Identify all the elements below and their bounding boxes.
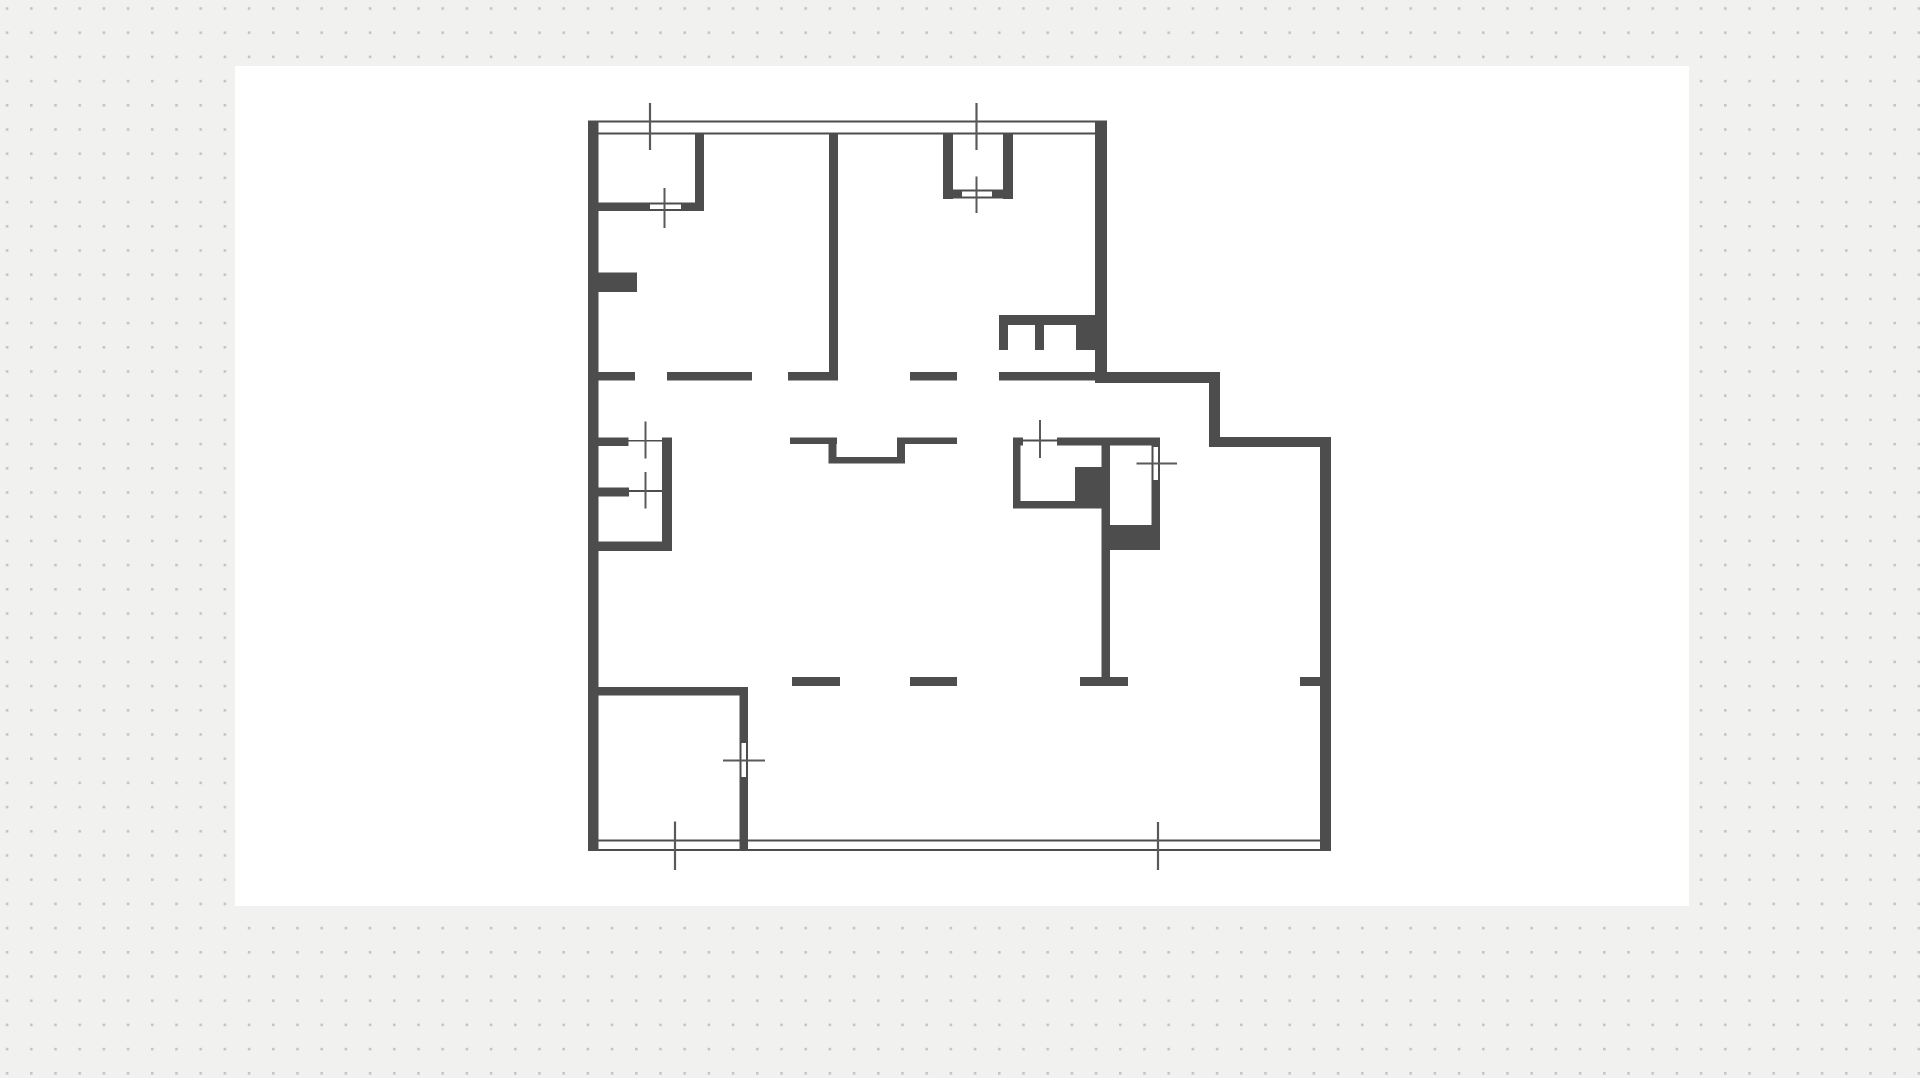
dimension-tick-top-wall-tick-right bbox=[975, 103, 977, 150]
wall-room3-top[interactable] bbox=[588, 687, 748, 696]
wall-room3-right-a[interactable] bbox=[740, 687, 749, 743]
wall-bath-right-b[interactable] bbox=[1152, 480, 1161, 550]
wall-counter-block[interactable] bbox=[1076, 325, 1097, 350]
wall-partition-lower[interactable] bbox=[1102, 550, 1111, 677]
thin-top-wall-outer[interactable] bbox=[588, 121, 1095, 123]
wall-dash1-c[interactable] bbox=[788, 372, 838, 381]
wall-closet-right[interactable] bbox=[662, 438, 672, 552]
wall-dash2-a[interactable] bbox=[792, 677, 840, 686]
wall-bath-bottom-left[interactable] bbox=[1013, 501, 1077, 509]
wall-closet-bottom[interactable] bbox=[598, 542, 672, 552]
design-canvas[interactable] bbox=[0, 0, 1920, 1078]
wall-dash1-a[interactable] bbox=[598, 372, 635, 381]
wall-exterior-right-lower[interactable] bbox=[1320, 437, 1331, 850]
wall-dash1-d[interactable] bbox=[910, 372, 957, 381]
wall-room2-right[interactable] bbox=[1003, 133, 1013, 199]
wall-counter-stub-b[interactable] bbox=[1035, 325, 1044, 350]
opening-tick bbox=[1137, 462, 1178, 464]
wall-bath-left[interactable] bbox=[1013, 438, 1021, 509]
wall-closet-mid[interactable] bbox=[598, 488, 629, 497]
opening-tick bbox=[975, 177, 977, 214]
floorplan-svg[interactable] bbox=[0, 0, 1920, 1078]
opening-tick bbox=[644, 472, 646, 509]
dimension-tick-top-wall-tick-left bbox=[649, 103, 651, 150]
wall-bath-right-a[interactable] bbox=[1152, 438, 1161, 448]
wall-pier[interactable] bbox=[598, 273, 637, 293]
wall-room1-right[interactable] bbox=[695, 133, 704, 211]
wall-step-top[interactable] bbox=[1107, 372, 1220, 383]
wall-niche-top-right[interactable] bbox=[897, 438, 957, 445]
opening-tick bbox=[1039, 420, 1041, 458]
wall-exterior-left[interactable] bbox=[588, 121, 599, 852]
wall-dash1-b[interactable] bbox=[667, 372, 752, 381]
thin-bottom-wall-outer[interactable] bbox=[588, 849, 1331, 851]
wall-closet-top-a[interactable] bbox=[598, 438, 629, 447]
opening-tick bbox=[723, 759, 765, 761]
thin-bottom-wall-inner[interactable] bbox=[599, 840, 1321, 842]
opening-tick bbox=[663, 188, 665, 228]
wall-dash2-stub[interactable] bbox=[1300, 677, 1320, 686]
wall-counter-stub-a[interactable] bbox=[999, 325, 1008, 350]
wall-room2-bottom-a[interactable] bbox=[943, 190, 962, 199]
wall-counter-top[interactable] bbox=[999, 315, 1097, 325]
wall-room2-left[interactable] bbox=[943, 133, 953, 199]
wall-dash1-e[interactable] bbox=[999, 372, 1095, 381]
wall-niche-bottom[interactable] bbox=[829, 457, 906, 464]
wall-bath-top-b[interactable] bbox=[1057, 438, 1160, 446]
opening-tick bbox=[644, 422, 646, 459]
wall-tbar[interactable] bbox=[1080, 677, 1128, 686]
wall-step-side[interactable] bbox=[1209, 383, 1220, 447]
wall-bath-mid[interactable] bbox=[1102, 445, 1111, 525]
dimension-tick-bottom-wall-tick-left bbox=[674, 822, 676, 871]
wall-interior-main[interactable] bbox=[829, 133, 838, 380]
wall-step-top-2[interactable] bbox=[1220, 437, 1331, 447]
thin-top-wall-inner[interactable] bbox=[599, 133, 1096, 135]
wall-room1-bottom-b[interactable] bbox=[681, 203, 704, 212]
wall-bath-block[interactable] bbox=[1075, 467, 1102, 509]
wall-room2-bottom-b[interactable] bbox=[992, 190, 1013, 199]
wall-bath-bottom-block[interactable] bbox=[1102, 525, 1161, 550]
dimension-tick-bottom-wall-tick-right bbox=[1157, 822, 1159, 870]
wall-dash2-b[interactable] bbox=[910, 677, 957, 686]
wall-room1-bottom-a[interactable] bbox=[598, 203, 650, 212]
